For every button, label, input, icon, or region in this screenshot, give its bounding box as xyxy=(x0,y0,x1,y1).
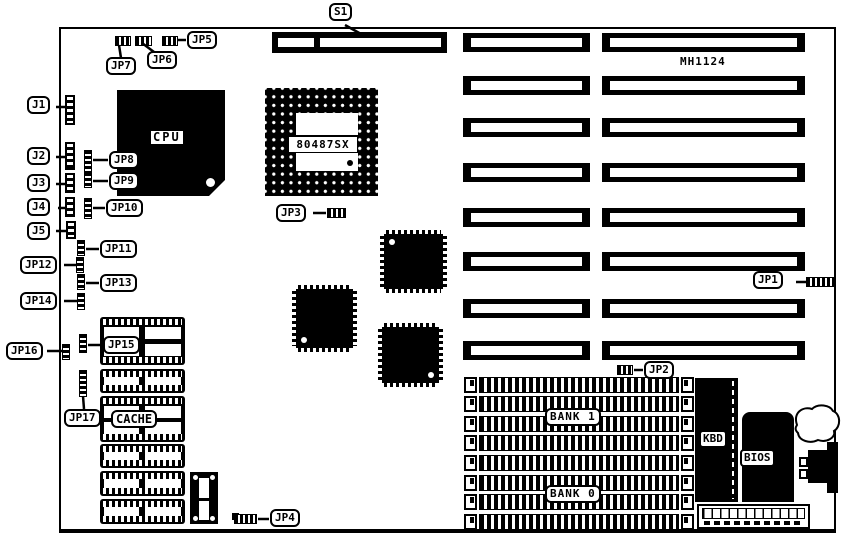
callout-jp14: JP14 xyxy=(20,292,57,310)
callout-jp17: JP17 xyxy=(64,409,101,427)
motherboard-diagram: MH1124 CPU 80487SX xyxy=(0,0,844,540)
callout-jp5: JP5 xyxy=(187,31,217,49)
jumper-jp13-pins xyxy=(77,274,85,290)
callout-j3: J3 xyxy=(27,174,50,192)
cache-dip-socket xyxy=(100,444,185,468)
callout-jp11: JP11 xyxy=(100,240,137,258)
cache-label: CACHE xyxy=(111,410,157,428)
jumper-jp15-pins xyxy=(79,334,87,353)
jumper-jp16-pins xyxy=(62,344,70,360)
coprocessor-socket: 80487SX xyxy=(265,88,378,196)
coprocessor-label: 80487SX xyxy=(288,136,358,153)
jumper-jp17-pins xyxy=(79,370,87,397)
callout-jp10: JP10 xyxy=(106,199,143,217)
din-pin-tab xyxy=(799,457,808,467)
keyboard-din-connector xyxy=(827,442,838,493)
callout-jp15: JP15 xyxy=(103,336,140,354)
slot-segment xyxy=(463,252,590,271)
connector-j1 xyxy=(65,95,75,125)
cache-dip-socket xyxy=(100,471,185,496)
slot-segment xyxy=(602,299,805,318)
bank1-label: BANK 1 xyxy=(545,408,601,426)
slot-segment xyxy=(602,252,805,271)
slot-segment xyxy=(602,118,805,137)
cpu-label: CPU xyxy=(151,131,183,144)
jumper-jp6-pins xyxy=(135,36,152,46)
simm-socket xyxy=(464,435,694,451)
jumper-jp5-pins xyxy=(162,36,178,46)
slot-segment xyxy=(602,341,805,360)
callout-j4: J4 xyxy=(27,198,50,216)
slot-segment xyxy=(463,299,590,318)
bios-label: BIOS xyxy=(740,449,775,467)
callout-jp16: JP16 xyxy=(6,342,43,360)
cache-dip-socket xyxy=(100,499,185,524)
callout-s1: S1 xyxy=(329,3,352,21)
callout-jp12: JP12 xyxy=(20,256,57,274)
callout-j5: J5 xyxy=(27,222,50,240)
cache-dip-socket xyxy=(100,369,185,393)
jumper-jp14-pins xyxy=(77,293,85,310)
bank0-label: BANK 0 xyxy=(545,485,601,503)
connector-j5 xyxy=(66,221,76,239)
callout-jp2: JP2 xyxy=(644,361,674,379)
qfp-chip xyxy=(380,230,447,293)
dip8-component xyxy=(190,472,218,524)
pin1-dot xyxy=(428,372,434,378)
callout-jp9: JP9 xyxy=(109,172,139,190)
slot-window xyxy=(320,38,441,47)
callout-jp4: JP4 xyxy=(270,509,300,527)
socket-window xyxy=(296,153,358,171)
pin1-dot xyxy=(389,239,395,245)
connector-j2 xyxy=(65,142,75,170)
socket-dot xyxy=(347,160,353,166)
jumper-jp10-pins xyxy=(84,198,92,219)
power-connector xyxy=(697,504,810,529)
slot-segment xyxy=(602,208,805,227)
slot-segment xyxy=(602,33,805,52)
jumper-jp3-pins xyxy=(327,208,346,218)
callout-jp8: JP8 xyxy=(109,151,139,169)
slot-window xyxy=(278,38,314,47)
pin1-dot xyxy=(206,178,215,187)
callout-jp13: JP13 xyxy=(100,274,137,292)
slot-segment xyxy=(602,76,805,95)
jumper-jp2-pins xyxy=(617,365,633,375)
callout-jp7: JP7 xyxy=(106,57,136,75)
simm-socket xyxy=(464,514,694,530)
slot-segment xyxy=(463,76,590,95)
simm-socket xyxy=(464,377,694,393)
jumper-jp7-pins xyxy=(115,36,131,46)
qfp-chip xyxy=(292,285,357,352)
jumper-jp9-pins xyxy=(84,172,92,188)
slot-segment xyxy=(463,163,590,182)
slot-segment xyxy=(463,118,590,137)
jumper-jp1-pins xyxy=(806,277,834,287)
slot-segment xyxy=(463,33,590,52)
jumper-jp8-pins xyxy=(84,150,92,172)
callout-jp6: JP6 xyxy=(147,51,177,69)
callout-j1: J1 xyxy=(27,96,50,114)
callout-jp3: JP3 xyxy=(276,204,306,222)
slot-segment xyxy=(463,208,590,227)
kbd-label: KBD xyxy=(699,430,727,448)
simm-socket xyxy=(464,455,694,471)
qfp-chip xyxy=(378,323,443,387)
board-model-text: MH1124 xyxy=(678,55,728,68)
callout-j2: J2 xyxy=(27,147,50,165)
jumper-jp12-pins xyxy=(76,257,84,273)
din-pin-tab xyxy=(799,469,808,479)
slot-segment xyxy=(602,163,805,182)
connector-j3 xyxy=(65,173,75,193)
jumper-jp11-pins xyxy=(77,240,85,256)
slot-s1 xyxy=(272,32,447,53)
jumper-jp4-pins xyxy=(234,514,257,524)
slot-segment xyxy=(463,341,590,360)
pin1-dot xyxy=(301,337,307,343)
callout-jp1: JP1 xyxy=(753,271,783,289)
connector-j4 xyxy=(65,197,75,217)
socket-window xyxy=(296,113,358,135)
